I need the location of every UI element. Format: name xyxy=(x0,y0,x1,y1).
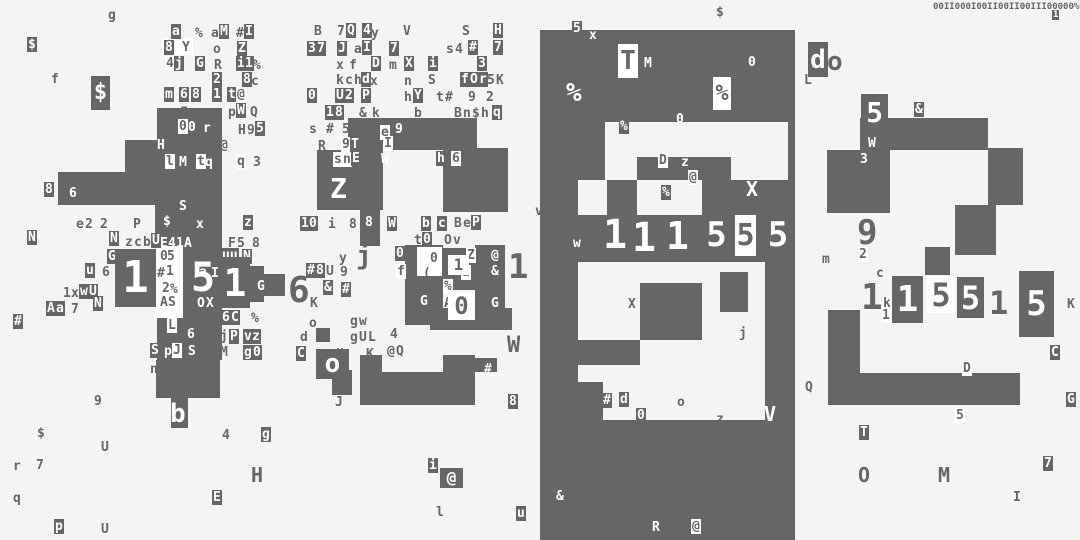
noise-glyph: 8 xyxy=(349,217,357,232)
noise-glyph: K xyxy=(366,347,374,362)
noise-glyph: 5 xyxy=(255,121,265,136)
digit-glyph: 6 xyxy=(288,272,310,310)
noise-glyph: d xyxy=(619,392,629,407)
noise-glyph: B xyxy=(454,106,462,121)
noise-glyph: W xyxy=(381,152,389,167)
noise-glyph: P xyxy=(361,88,371,103)
digit-glyph: d xyxy=(808,42,828,77)
noise-glyph: b xyxy=(414,106,422,121)
noise-glyph: S xyxy=(428,73,436,88)
noise-glyph: o xyxy=(213,42,221,57)
noise-glyph: W xyxy=(868,136,876,151)
noise-glyph: z xyxy=(251,329,261,344)
noise-glyph: 2 xyxy=(162,281,170,296)
noise-glyph: L xyxy=(167,318,177,333)
digit-glyph: 1 xyxy=(989,286,1008,320)
noise-glyph: 0 xyxy=(422,232,432,247)
noise-glyph: 9 xyxy=(395,122,403,137)
noise-glyph: P xyxy=(471,215,481,230)
noise-glyph: % xyxy=(253,58,261,73)
noise-glyph: y xyxy=(339,251,347,266)
noise-glyph: C xyxy=(230,310,240,325)
noise-glyph: z xyxy=(180,103,188,118)
noise-glyph: Y xyxy=(181,40,191,55)
noise-glyph: 5 xyxy=(955,408,965,423)
noise-glyph: P xyxy=(229,329,239,344)
noise-glyph: 0 xyxy=(252,345,262,360)
noise-glyph: 8 xyxy=(364,215,374,230)
noise-glyph: f xyxy=(396,264,406,279)
shape-block xyxy=(58,172,222,205)
noise-glyph: j xyxy=(220,329,228,344)
noise-glyph: # xyxy=(157,266,165,281)
digit-glyph: % xyxy=(566,79,582,107)
noise-glyph: U xyxy=(101,440,109,455)
shape-block xyxy=(720,272,748,312)
ticker-chip: 1 xyxy=(1052,10,1059,20)
noise-glyph: 9 xyxy=(94,394,102,409)
noise-glyph: 8 xyxy=(508,394,518,409)
noise-glyph: t xyxy=(414,233,422,248)
noise-glyph: M xyxy=(179,155,187,170)
noise-glyph: I xyxy=(383,136,393,151)
noise-glyph: 6 xyxy=(451,151,461,166)
noise-glyph: X xyxy=(628,297,636,312)
noise-glyph: w xyxy=(359,314,367,329)
noise-glyph: K xyxy=(310,296,318,311)
noise-glyph: G xyxy=(195,56,205,71)
shape-block xyxy=(348,118,477,150)
noise-glyph: a xyxy=(171,24,181,39)
digit-glyph: 1 xyxy=(508,249,528,285)
noise-glyph: m xyxy=(822,252,830,267)
noise-glyph: S xyxy=(150,343,160,358)
noise-glyph: q xyxy=(13,491,21,506)
noise-glyph: 7 xyxy=(1043,456,1053,471)
noise-glyph: 1 xyxy=(166,264,174,279)
noise-glyph: e xyxy=(76,217,84,232)
noise-glyph: n xyxy=(404,74,412,89)
noise-glyph: J xyxy=(335,395,343,410)
noise-glyph: z xyxy=(716,412,724,427)
noise-glyph: l xyxy=(436,505,444,520)
noise-glyph: @ xyxy=(490,248,500,263)
noise-glyph: b xyxy=(143,235,151,250)
noise-glyph: U xyxy=(101,522,109,537)
noise-glyph: i xyxy=(428,458,438,473)
shape-block xyxy=(540,30,795,122)
noise-glyph: x xyxy=(196,217,204,232)
noise-glyph: 8 xyxy=(164,40,174,55)
shape-block xyxy=(765,262,795,420)
noise-glyph: W xyxy=(236,103,246,118)
noise-glyph: # xyxy=(341,282,351,297)
digit-glyph: % xyxy=(713,77,731,110)
noise-glyph: H xyxy=(493,23,503,38)
noise-glyph: # xyxy=(484,362,492,377)
noise-glyph: & xyxy=(556,489,564,504)
noise-glyph: i xyxy=(428,56,438,71)
shape-block xyxy=(955,205,996,255)
noise-glyph: & xyxy=(323,280,333,295)
noise-glyph: g xyxy=(108,8,116,23)
noise-glyph: g xyxy=(350,330,358,345)
noise-glyph: $ xyxy=(716,5,724,20)
noise-glyph: @ xyxy=(691,519,701,534)
noise-glyph: Z xyxy=(237,41,247,56)
noise-glyph: C xyxy=(1050,345,1060,360)
noise-glyph: D xyxy=(658,153,668,168)
digit-glyph: b xyxy=(170,400,186,428)
digit-glyph: 1 xyxy=(666,216,689,256)
digit-glyph: 0 xyxy=(448,292,475,320)
noise-glyph: N xyxy=(109,231,119,246)
noise-glyph: u xyxy=(85,263,95,278)
noise-glyph: c xyxy=(437,216,447,231)
noise-glyph: 4 xyxy=(222,428,230,443)
noise-glyph: s xyxy=(309,122,317,137)
shape-block xyxy=(578,420,795,540)
noise-glyph: B xyxy=(314,24,322,39)
noise-glyph: 6 xyxy=(102,265,110,280)
digit-glyph: 1 xyxy=(632,217,656,259)
digit-glyph: 1 xyxy=(861,279,883,317)
digit-glyph: 5 xyxy=(957,277,984,318)
noise-glyph: 4 xyxy=(390,327,398,342)
noise-glyph: d xyxy=(300,330,308,345)
noise-glyph: v xyxy=(453,233,461,248)
noise-glyph: & xyxy=(914,102,924,117)
noise-glyph: x xyxy=(589,28,597,43)
shape-block xyxy=(382,372,443,405)
noise-glyph: C xyxy=(296,346,306,361)
noise-glyph: # xyxy=(468,40,478,55)
noise-glyph: 1 xyxy=(63,286,71,301)
noise-glyph: k xyxy=(372,106,380,121)
noise-glyph: q xyxy=(205,155,213,170)
noise-glyph: 0 xyxy=(636,408,646,423)
noise-glyph: z xyxy=(125,235,133,250)
noise-glyph: u xyxy=(516,506,526,521)
noise-glyph: k xyxy=(336,73,344,88)
noise-glyph: 3 xyxy=(477,56,487,71)
noise-glyph: E xyxy=(351,151,361,166)
noise-glyph: g xyxy=(350,314,358,329)
noise-glyph: & xyxy=(359,106,367,121)
noise-glyph: 6 xyxy=(187,327,195,342)
noise-glyph: 7 xyxy=(316,41,326,56)
noise-glyph: 7 xyxy=(389,41,399,56)
noise-glyph: 2 xyxy=(100,217,108,232)
noise-glyph: Q xyxy=(396,344,404,359)
noise-glyph: S xyxy=(188,344,196,359)
noise-glyph: n xyxy=(463,106,471,121)
noise-glyph: m xyxy=(389,58,397,73)
noise-glyph: 5 xyxy=(342,122,350,137)
noise-glyph: % xyxy=(195,26,203,41)
noise-glyph: G xyxy=(1066,392,1076,407)
noise-glyph: 7 xyxy=(71,302,79,317)
noise-glyph: 0 xyxy=(308,216,318,231)
digit-glyph: 5 xyxy=(735,215,756,256)
noise-glyph: V xyxy=(403,24,411,39)
noise-glyph: Q xyxy=(346,23,356,38)
noise-glyph: 9 xyxy=(340,265,348,280)
digit-glyph: @ xyxy=(440,468,463,488)
noise-glyph: S xyxy=(179,199,187,214)
noise-glyph: B xyxy=(454,216,462,231)
noise-glyph: # xyxy=(236,26,244,41)
noise-glyph: M xyxy=(219,24,229,39)
digit-glyph: V xyxy=(764,403,776,425)
noise-glyph: I xyxy=(244,24,254,39)
digit-glyph: 5 xyxy=(703,213,730,256)
noise-glyph: 5 xyxy=(487,73,495,88)
noise-glyph: 1 xyxy=(176,236,184,251)
noise-glyph: # xyxy=(326,122,334,137)
shape-block xyxy=(578,382,603,420)
noise-glyph: H xyxy=(157,138,165,153)
noise-glyph: L xyxy=(195,310,203,325)
digit-glyph: 1 xyxy=(448,255,469,275)
noise-glyph: q xyxy=(492,105,502,120)
noise-glyph: n xyxy=(150,362,158,377)
noise-glyph: m xyxy=(164,87,174,102)
noise-glyph: o xyxy=(309,316,317,331)
noise-glyph: t xyxy=(436,90,444,105)
noise-glyph: 8 xyxy=(334,105,344,120)
noise-glyph: r xyxy=(13,459,21,474)
noise-glyph: z xyxy=(243,215,253,230)
noise-glyph: U xyxy=(326,264,334,279)
digit-glyph: 1 xyxy=(115,249,156,307)
digit-glyph: 5 xyxy=(764,213,792,256)
noise-glyph: I xyxy=(362,40,372,55)
shape-block xyxy=(540,122,578,540)
noise-glyph: $ xyxy=(37,426,45,441)
noise-glyph: # xyxy=(13,314,23,329)
noise-glyph: 8 xyxy=(252,236,260,251)
shape-block xyxy=(316,328,330,342)
noise-glyph: @ xyxy=(688,170,698,185)
noise-glyph: l xyxy=(165,154,175,169)
shape-block xyxy=(578,340,640,365)
noise-glyph: G xyxy=(419,294,429,309)
noise-glyph: Q xyxy=(805,380,813,395)
noise-glyph: w xyxy=(573,236,581,251)
noise-glyph: b xyxy=(421,216,431,231)
noise-glyph: G xyxy=(490,296,500,311)
noise-glyph: 2 xyxy=(344,88,354,103)
noise-glyph: & xyxy=(490,264,500,279)
noise-glyph: K xyxy=(1067,297,1075,312)
noise-glyph: j xyxy=(174,56,184,71)
noise-glyph: J xyxy=(337,41,347,56)
noise-glyph: p xyxy=(54,519,64,534)
noise-glyph: E xyxy=(212,490,222,505)
noise-glyph: M xyxy=(644,56,652,71)
noise-glyph: q xyxy=(236,154,246,169)
noise-glyph: # xyxy=(445,90,453,105)
noise-glyph: x xyxy=(71,286,79,301)
noise-glyph: X xyxy=(404,56,414,71)
digit-glyph: 5 xyxy=(191,257,215,299)
shape-block xyxy=(443,355,475,405)
noise-glyph: 1 xyxy=(212,87,222,102)
noise-glyph: 2 xyxy=(85,217,93,232)
noise-glyph: p xyxy=(164,344,172,359)
noise-glyph: N xyxy=(93,296,103,311)
noise-glyph: E xyxy=(476,297,484,312)
digit-glyph: T xyxy=(618,44,638,78)
noise-glyph: 0 xyxy=(178,119,188,134)
noise-glyph: i xyxy=(328,217,336,232)
digit-glyph: o xyxy=(316,349,349,379)
noise-glyph: W xyxy=(387,216,397,231)
noise-glyph: 2 xyxy=(486,90,494,105)
digit-glyph: X xyxy=(746,178,758,200)
noise-glyph: @ xyxy=(387,344,395,359)
shape-block xyxy=(828,310,860,373)
noise-glyph: p xyxy=(228,105,236,120)
noise-glyph: 8 xyxy=(44,182,54,197)
noise-glyph: o xyxy=(677,395,685,410)
noise-glyph: 8 xyxy=(315,263,325,278)
noise-glyph: 8 xyxy=(191,87,201,102)
noise-glyph: 6 xyxy=(179,87,189,102)
digit-glyph: 9 xyxy=(857,215,877,251)
noise-glyph: Y xyxy=(413,88,423,103)
shape-block xyxy=(988,148,1023,205)
digit-glyph: Z xyxy=(330,174,347,204)
noise-glyph: 7 xyxy=(337,24,345,39)
noise-glyph: S xyxy=(462,24,470,39)
noise-glyph: $ xyxy=(163,214,171,229)
digit-glyph: 1 xyxy=(603,214,627,256)
digit-glyph: 5 xyxy=(1019,271,1054,337)
noise-glyph: 5 xyxy=(436,295,444,310)
noise-glyph: N xyxy=(27,230,37,245)
noise-glyph: % xyxy=(661,185,671,200)
noise-glyph: 2 xyxy=(212,72,222,87)
digit-glyph: H xyxy=(251,464,263,486)
noise-glyph: g xyxy=(261,427,271,442)
glyph-noise-canvas: g$fa%aM#I8YoZ4jGRi1%28cm681t@zpWQ00rH95H… xyxy=(0,0,1080,540)
shape-block xyxy=(156,360,220,398)
noise-glyph: $ xyxy=(27,37,37,52)
noise-glyph: h xyxy=(436,151,446,166)
noise-glyph: 7 xyxy=(36,458,44,473)
noise-glyph: 0 xyxy=(430,251,438,266)
noise-glyph: # xyxy=(602,393,612,408)
noise-glyph: 3 xyxy=(253,155,261,170)
digit-glyph: O xyxy=(858,464,870,486)
shape-block xyxy=(828,373,1020,405)
noise-glyph: c xyxy=(134,235,142,250)
noise-glyph: M xyxy=(220,345,228,360)
noise-glyph: v xyxy=(535,204,543,219)
noise-glyph: $ xyxy=(472,106,480,121)
noise-glyph: R xyxy=(652,520,660,535)
shape-block xyxy=(925,247,950,275)
noise-glyph: 0 xyxy=(188,120,196,135)
noise-glyph: @ xyxy=(220,138,228,153)
noise-glyph: Q xyxy=(250,105,258,120)
noise-glyph: 6 xyxy=(69,186,77,201)
noise-glyph: 9 xyxy=(468,90,476,105)
noise-glyph: x xyxy=(336,58,344,73)
digit-glyph: 1 xyxy=(892,276,923,323)
digit-glyph: $ xyxy=(91,76,110,110)
noise-glyph: z xyxy=(681,155,689,170)
digit-glyph: W xyxy=(507,334,520,358)
noise-glyph: H xyxy=(238,123,246,138)
noise-glyph: s xyxy=(446,42,454,57)
noise-glyph: 3 xyxy=(860,152,868,167)
noise-glyph: 0 xyxy=(307,88,317,103)
shape-block xyxy=(827,150,890,213)
noise-glyph: G xyxy=(256,279,266,294)
digit-glyph: 5 xyxy=(861,94,888,131)
noise-glyph: f xyxy=(51,72,59,87)
shape-block xyxy=(578,122,605,180)
noise-glyph: 5 xyxy=(572,21,582,36)
shape-block xyxy=(640,283,702,340)
noise-glyph: T xyxy=(859,425,869,440)
noise-glyph: 9 xyxy=(247,123,255,138)
shape-block xyxy=(360,355,382,405)
noise-glyph: J xyxy=(172,343,182,358)
noise-glyph: T xyxy=(350,137,360,152)
noise-glyph: f xyxy=(349,58,357,73)
noise-glyph: I xyxy=(1013,490,1021,505)
noise-glyph: K xyxy=(496,73,504,88)
noise-glyph: A xyxy=(184,236,192,251)
noise-glyph: % xyxy=(251,311,259,326)
noise-glyph: a xyxy=(354,42,362,57)
noise-glyph: A xyxy=(160,295,168,310)
noise-glyph: 4 xyxy=(455,42,463,57)
noise-glyph: h xyxy=(404,90,412,105)
noise-glyph: y xyxy=(371,26,379,41)
noise-glyph: 5 xyxy=(167,249,175,264)
shape-block xyxy=(607,180,637,215)
noise-glyph: h xyxy=(481,106,489,121)
noise-glyph: U xyxy=(359,330,367,345)
noise-glyph: @ xyxy=(236,87,246,102)
noise-glyph: 0 xyxy=(676,112,684,127)
noise-glyph: P xyxy=(133,217,141,232)
noise-glyph: 0 xyxy=(748,55,756,70)
noise-glyph: r xyxy=(203,121,211,136)
noise-glyph: j xyxy=(739,326,747,341)
noise-glyph: R xyxy=(214,58,222,73)
noise-glyph: D xyxy=(962,361,972,376)
noise-glyph: a xyxy=(211,26,219,41)
digit-glyph: 1 xyxy=(220,257,250,308)
noise-glyph: % xyxy=(619,119,629,134)
digit-glyph: o xyxy=(827,48,843,76)
digit-glyph: M xyxy=(938,464,950,486)
noise-glyph: a xyxy=(55,301,65,316)
noise-glyph: u xyxy=(183,251,191,266)
noise-glyph: 7 xyxy=(493,40,503,55)
noise-glyph: x xyxy=(370,74,378,89)
noise-glyph: 0 xyxy=(395,246,405,261)
digit-glyph: 5 xyxy=(927,276,955,313)
noise-glyph: L xyxy=(368,330,376,345)
digit-glyph: j xyxy=(356,242,372,270)
